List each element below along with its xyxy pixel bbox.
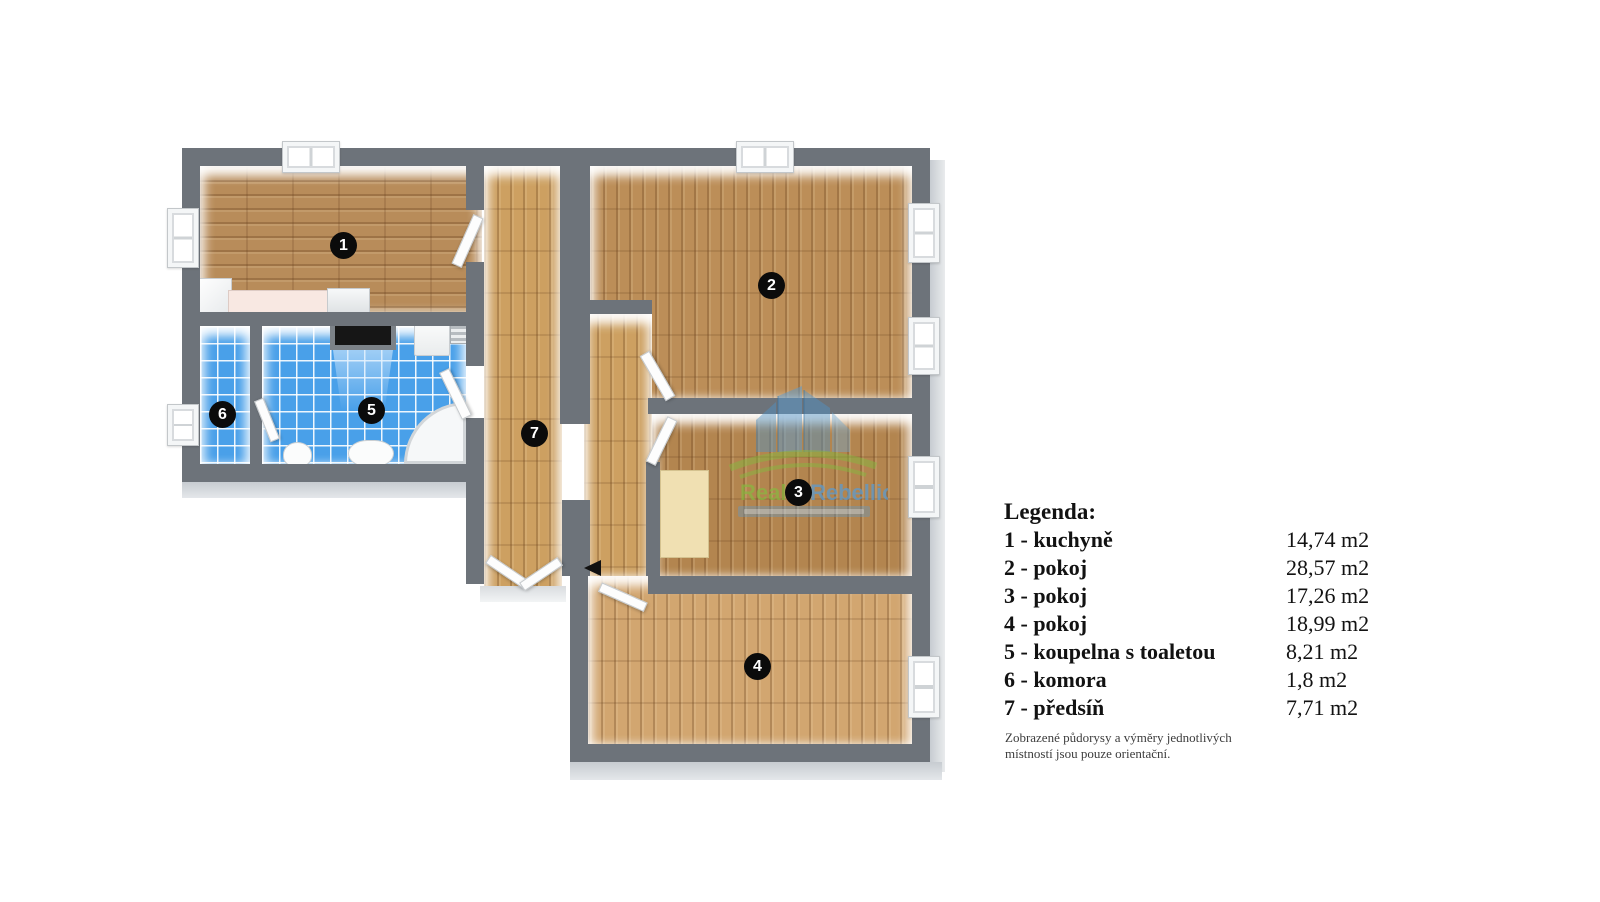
window-room2-right-1	[908, 203, 940, 263]
legend-label-1: 1 - kuchyně	[1004, 526, 1286, 554]
legend-area-2: 28,57 m2	[1286, 554, 1369, 582]
room-badge-1: 1	[330, 232, 357, 259]
wall-hall-left-a	[466, 166, 484, 210]
legend-disclaimer: Zobrazené půdorysy a výměry jednotlivých…	[1005, 730, 1232, 761]
wall-hall-right-column	[560, 166, 590, 424]
floorplan-canvas: 1 2 3 4 5 6 7 Reality Rebellion	[0, 0, 1600, 902]
kitchen-stove	[327, 288, 370, 314]
disclaimer-line-2: místností jsou pouze orientační.	[1005, 746, 1232, 762]
window-kitchen-left	[167, 208, 199, 268]
kitchen-counter	[228, 290, 330, 314]
legend-row-3: 3 - pokoj 17,26 m2	[1004, 582, 1389, 610]
entrance-arrow-icon	[584, 560, 601, 576]
wall-hall-left-c	[466, 418, 484, 584]
room-badge-3: 3	[785, 479, 812, 506]
window-room2-top	[736, 141, 794, 173]
wall-kitchen-bath	[200, 312, 482, 326]
outer-face-bottom-right	[570, 762, 942, 780]
legend-area-3: 17,26 m2	[1286, 582, 1369, 610]
legend-label-7: 7 - předsíň	[1004, 694, 1286, 722]
window-komora-left	[167, 404, 199, 446]
legend-row-4: 4 - pokoj 18,99 m2	[1004, 610, 1389, 638]
room-badge-6: 6	[209, 401, 236, 428]
legend-area-1: 14,74 m2	[1286, 526, 1369, 554]
wall-room2-notch	[560, 300, 652, 314]
room-badge-5: 5	[358, 397, 385, 424]
wall-room3-room4	[648, 576, 912, 594]
watermark-logo: Reality Rebellion	[718, 382, 888, 527]
legend-label-2: 2 - pokoj	[1004, 554, 1286, 582]
wall-room3-left	[646, 462, 660, 576]
legend-label-5: 5 - koupelna s toaletou	[1004, 638, 1286, 666]
wall-bottom-left-block	[182, 464, 484, 482]
legend-area-4: 18,99 m2	[1286, 610, 1369, 638]
outer-face-bottom-left	[182, 482, 484, 498]
kitchen-fridge	[196, 278, 232, 314]
window-room4-right	[908, 656, 940, 718]
disclaimer-line-1: Zobrazené půdorysy a výměry jednotlivých	[1005, 730, 1232, 746]
legend-label-4: 4 - pokoj	[1004, 610, 1286, 638]
window-room2-right-2	[908, 317, 940, 375]
room-6-komora-floor	[200, 326, 250, 464]
room3-wardrobe	[660, 470, 709, 558]
watermark-arcs	[730, 453, 876, 477]
legend-area-5: 8,21 m2	[1286, 638, 1358, 666]
window-room3-right	[908, 456, 940, 518]
room-7-hall-floor	[484, 166, 562, 598]
wall-bottom-right-block	[570, 744, 930, 762]
watermark-word2: Rebellion	[810, 480, 888, 505]
hall-branch-floor	[584, 314, 652, 576]
bathroom-sink	[348, 440, 394, 467]
room-badge-7: 7	[521, 420, 548, 447]
room-badge-2: 2	[758, 272, 785, 299]
wall-komora-bath	[250, 312, 262, 464]
legend-row-1: 1 - kuchyně 14,74 m2	[1004, 526, 1389, 554]
legend-row-7: 7 - předsíň 7,71 m2	[1004, 694, 1389, 722]
legend-label-3: 3 - pokoj	[1004, 582, 1286, 610]
legend-title: Legenda:	[1004, 498, 1389, 526]
watermark-building-icon	[756, 386, 850, 452]
window-kitchen-top	[282, 141, 340, 173]
wall-hall-left-b	[466, 262, 484, 366]
legend-row-5: 5 - koupelna s toaletou 8,21 m2	[1004, 638, 1389, 666]
legend-area-7: 7,71 m2	[1286, 694, 1358, 722]
legend-area-6: 1,8 m2	[1286, 666, 1347, 694]
legend-row-2: 2 - pokoj 28,57 m2	[1004, 554, 1389, 582]
legend: Legenda: 1 - kuchyně 14,74 m2 2 - pokoj …	[1004, 498, 1389, 722]
room-badge-4: 4	[744, 653, 771, 680]
legend-label-6: 6 - komora	[1004, 666, 1286, 694]
wall-room4-left	[570, 576, 588, 762]
legend-row-6: 6 - komora 1,8 m2	[1004, 666, 1389, 694]
